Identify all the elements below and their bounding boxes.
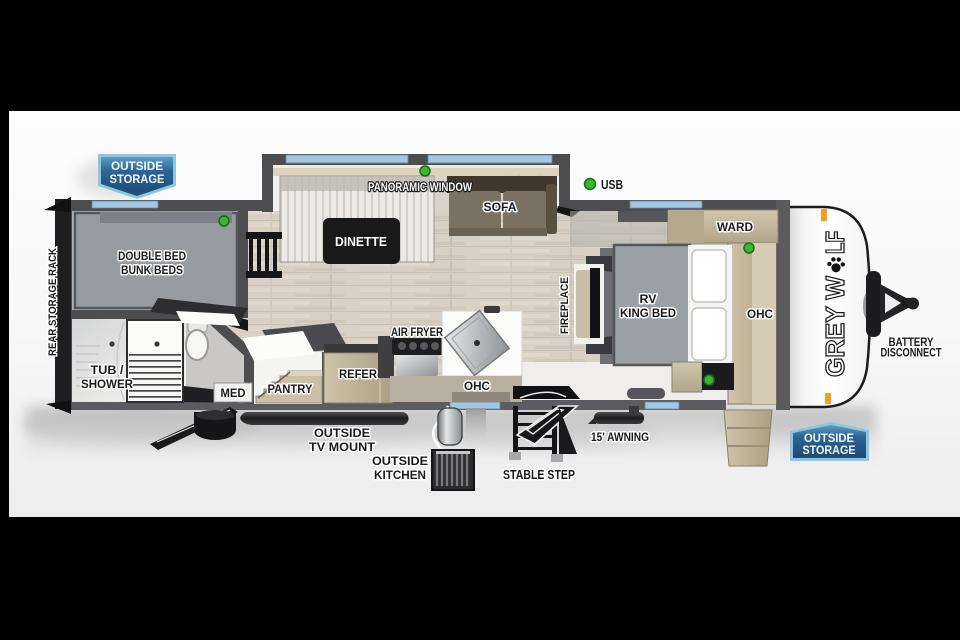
svg-text:STORAGE: STORAGE [110, 172, 165, 186]
svg-text:KING BED: KING BED [620, 306, 676, 320]
svg-text:SHOWER: SHOWER [81, 377, 133, 391]
svg-text:DOUBLE BED: DOUBLE BED [118, 249, 186, 263]
svg-text:BUNK BEDS: BUNK BEDS [121, 263, 183, 277]
svg-text:TV MOUNT: TV MOUNT [309, 440, 376, 454]
svg-text:OHC: OHC [464, 379, 490, 393]
svg-text:MED: MED [221, 386, 246, 400]
svg-text:PANORAMIC WINDOW: PANORAMIC WINDOW [368, 180, 473, 194]
svg-text:REAR STORAGE RACK: REAR STORAGE RACK [47, 248, 59, 356]
svg-text:OUTSIDE: OUTSIDE [111, 159, 163, 173]
svg-text:15' AWNING: 15' AWNING [591, 430, 649, 444]
svg-text:STORAGE: STORAGE [803, 445, 856, 457]
svg-text:OHC: OHC [747, 307, 773, 321]
svg-text:AIR FRYER: AIR FRYER [391, 325, 443, 339]
svg-text:USB: USB [601, 178, 623, 192]
svg-text:GREY W: GREY W [820, 276, 850, 377]
svg-text:TUB /: TUB / [91, 363, 125, 377]
svg-text:OUTSIDE: OUTSIDE [314, 426, 370, 440]
svg-text:DINETTE: DINETTE [335, 234, 387, 249]
svg-text:PANTRY: PANTRY [268, 382, 313, 396]
svg-text:KITCHEN: KITCHEN [374, 468, 426, 482]
svg-text:STABLE STEP: STABLE STEP [503, 467, 575, 482]
svg-text:FIREPLACE: FIREPLACE [559, 277, 571, 334]
svg-text:WARD: WARD [717, 220, 753, 234]
svg-text:LF: LF [820, 231, 850, 254]
svg-text:OUTSIDE: OUTSIDE [804, 433, 854, 445]
svg-text:SOFA: SOFA [484, 200, 517, 214]
svg-text:REFER: REFER [339, 367, 377, 381]
svg-text:RV: RV [640, 292, 657, 306]
svg-text:DISCONNECT: DISCONNECT [881, 346, 943, 360]
svg-text:OUTSIDE: OUTSIDE [372, 454, 428, 468]
